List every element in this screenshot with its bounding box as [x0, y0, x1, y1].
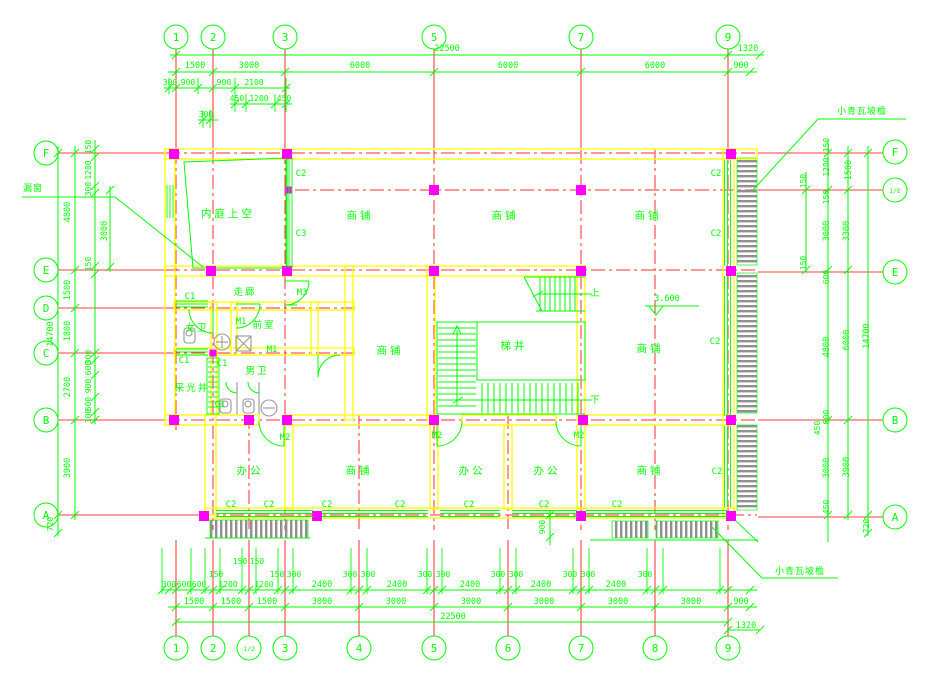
- dim-text: 150: [822, 190, 831, 205]
- dim-text: 2700: [63, 377, 73, 397]
- dim-text: 1500: [257, 597, 277, 607]
- tag-c2: C2: [296, 169, 307, 179]
- dim-text: 600: [822, 410, 831, 425]
- tag-c2: C2: [322, 500, 333, 510]
- dim-text: 150: [822, 138, 831, 153]
- dim-text: 6000: [350, 61, 370, 71]
- tag-m2: M2: [432, 431, 443, 441]
- grid-bubble-label: A: [892, 511, 899, 524]
- room-label-corridor: 走廊: [233, 286, 256, 298]
- dim-text: 300: [509, 570, 524, 579]
- grid-bubble-label: 2: [210, 31, 217, 44]
- cad-floor-plan: 1 2 3 5 7 9 1 2 1/2 3 4 5 6 7 8 9 F E D …: [0, 0, 933, 683]
- dim-text: 2400: [460, 580, 480, 590]
- tag-c2: C2: [711, 169, 722, 179]
- dim-text: 450: [813, 421, 822, 436]
- dim-text: 4800: [822, 337, 832, 357]
- column: [210, 350, 217, 357]
- dim-text: 22500: [440, 612, 466, 622]
- grid-bubble-label: 3: [282, 642, 289, 655]
- dim-text: 600: [192, 580, 207, 589]
- column: [726, 511, 736, 521]
- grid-bubble-label: B: [43, 414, 50, 427]
- column: [578, 415, 588, 425]
- column: [576, 511, 586, 521]
- room-label-anteroom: 前室: [252, 319, 275, 331]
- dim-text: 1320: [736, 621, 756, 631]
- dim-text: 900: [538, 520, 547, 535]
- room-label-shop: 商铺: [492, 209, 519, 222]
- room-label-office: 办公: [459, 464, 486, 477]
- dim-text: 2400: [312, 580, 332, 590]
- room-label-stair-well: 梯井: [501, 339, 528, 352]
- column: [312, 511, 322, 521]
- grid-bubble-label: 5: [431, 642, 438, 655]
- grid-bubble-label: D: [43, 302, 50, 315]
- eave-label-bottom: 小青瓦坡檐: [775, 565, 825, 577]
- room-label-shop: 商铺: [377, 344, 404, 357]
- grid-bubble-label: 9: [725, 31, 732, 44]
- dim-text: 450: [822, 500, 831, 515]
- dim-text: 6000: [498, 61, 518, 71]
- room-label-office: 办公: [237, 464, 264, 477]
- dim-text: 150: [270, 570, 285, 579]
- tag-c2: C2: [710, 337, 721, 347]
- grid-bubble-label: 6: [505, 642, 512, 655]
- grid-bubble-label: 5: [431, 31, 438, 44]
- dim-text: 1500: [63, 280, 73, 300]
- dim-text: 1320: [738, 44, 758, 54]
- dim-text: 600: [84, 361, 93, 376]
- tag-c1: C1: [179, 356, 190, 366]
- column: [206, 266, 216, 276]
- dim-text: 600: [177, 580, 192, 589]
- grid-bubble-label: 7: [578, 31, 585, 44]
- dim-text: 1500: [844, 160, 854, 180]
- dim-text: 14700: [46, 321, 56, 347]
- room-label-light-well: 采光井: [175, 382, 210, 394]
- eave-corner: [733, 518, 758, 542]
- dim-text: 300: [581, 570, 596, 579]
- dim-text: 3000: [386, 597, 406, 607]
- column: [726, 415, 736, 425]
- grid-bubble-label: E: [892, 266, 899, 279]
- eave-band: [737, 273, 757, 413]
- room-label-womens-wc: 女卫: [185, 322, 208, 334]
- dim-text: 2400: [531, 580, 551, 590]
- tag-m1: M1: [236, 317, 247, 327]
- dim-text: 900: [733, 61, 748, 71]
- room-label-mens-wc: 男卫: [245, 366, 268, 377]
- dim-text: 1800: [63, 321, 73, 341]
- column: [726, 266, 736, 276]
- dim-text: 900: [181, 78, 196, 87]
- elevation-triangle: [649, 306, 663, 315]
- tag-m3: M3: [297, 288, 308, 298]
- dim-text: 300: [163, 78, 178, 87]
- elevation-value: 3.600: [654, 294, 680, 304]
- eave-band: [737, 425, 757, 510]
- grid-bubble-label: F: [892, 146, 899, 159]
- dim-text: 6000: [842, 330, 852, 350]
- grid-bubble-label: 7: [578, 642, 585, 655]
- tag-m2: M2: [574, 431, 585, 441]
- dim-text: 3000: [608, 597, 628, 607]
- tag-c2: C2: [712, 467, 723, 477]
- dim-text: 3000: [100, 221, 110, 241]
- tag-c2: C2: [264, 500, 275, 510]
- grid-bubble-label: F: [43, 147, 50, 160]
- dim-text: 300: [287, 570, 302, 579]
- column: [169, 415, 179, 425]
- dim-text: 1200: [249, 94, 268, 103]
- column: [282, 149, 292, 159]
- dim-text: 300: [563, 570, 578, 579]
- column: [429, 266, 439, 276]
- dim-text: 2100: [244, 78, 263, 87]
- column: [429, 185, 439, 195]
- grid-axes: [58, 49, 883, 636]
- dim-text: 300: [84, 409, 93, 424]
- room-label-shop: 商铺: [346, 464, 373, 477]
- dim-text: 6000: [645, 61, 665, 71]
- dim-text: 900: [84, 379, 93, 394]
- tag-c1: C1: [217, 359, 228, 369]
- eave-band: [737, 158, 757, 265]
- dim-text: 3000: [239, 61, 259, 71]
- right-dimensions: 14700 720 1500 3300 6000 3900 150 1200 1…: [799, 138, 872, 534]
- grid-bubble-label: 1: [173, 31, 180, 44]
- dim-text: 3000: [822, 221, 832, 241]
- tag-c1: C1: [215, 400, 226, 410]
- room-label-shop: 商铺: [347, 209, 374, 222]
- dim-text: 900: [217, 78, 232, 87]
- dim-text: 300: [418, 570, 433, 579]
- column: [726, 149, 736, 159]
- dim-text: 22500: [434, 44, 460, 54]
- grid-bubble-label: 3: [282, 31, 289, 44]
- column: [169, 149, 179, 159]
- floor-plan-drawing: 1 2 3 5 7 9 1 2 1/2 3 4 5 6 7 8 9 F E D …: [0, 0, 933, 683]
- column: [576, 266, 586, 276]
- wall: [174, 302, 354, 310]
- dim-text: 150: [84, 140, 93, 155]
- grid-bubble-label: 2: [210, 642, 217, 655]
- dim-text: 150: [209, 570, 224, 579]
- dim-text: 2400: [387, 580, 407, 590]
- grid-bubble-label: 9: [725, 642, 732, 655]
- dim-text: 450: [277, 94, 292, 103]
- stall-door-arc: [248, 382, 259, 393]
- dim-text: 3000: [461, 597, 481, 607]
- dim-text: 450: [230, 94, 245, 103]
- grid-bubble-label: B: [892, 414, 899, 427]
- dim-text: 150: [250, 557, 265, 566]
- grid-bubble-label: 8: [652, 642, 659, 655]
- dim-text: 3000: [312, 597, 332, 607]
- column: [282, 415, 292, 425]
- dim-text: 1200: [84, 160, 93, 179]
- dim-text: 1200: [254, 580, 273, 589]
- grid-bubble-label: 1/E: [889, 187, 901, 195]
- column: [199, 511, 209, 521]
- grid-bubble-label: 4: [356, 642, 363, 655]
- tag-c1: C1: [185, 292, 196, 302]
- lattice-window-label: 漏窗: [23, 182, 43, 194]
- grid-bubble-label: 1/2: [243, 645, 255, 653]
- wall: [205, 415, 216, 515]
- dim-text: 600: [822, 270, 831, 285]
- stair-up-label: 上: [590, 288, 602, 299]
- toilet: [245, 401, 251, 407]
- dim-text: 300: [199, 110, 214, 119]
- dim-text: 150: [233, 557, 248, 566]
- tag-c2: C2: [711, 229, 722, 239]
- grid-bubble-label: C: [43, 347, 50, 360]
- leader-eave-bottom: [712, 527, 762, 578]
- tag-c2: C2: [612, 500, 623, 510]
- tag-m1: M1: [267, 345, 278, 355]
- dim-text: 2400: [606, 580, 626, 590]
- stair-down-label: 下: [590, 395, 602, 406]
- dim-text: 150: [799, 174, 808, 189]
- room-label-courtyard: 内庭上空: [201, 207, 255, 220]
- eave-band: [612, 521, 648, 538]
- column: [244, 415, 254, 425]
- tag-c3: C3: [296, 229, 307, 239]
- dim-text: 300: [361, 570, 376, 579]
- dim-text: 720: [862, 519, 871, 534]
- door-arc-m1: [318, 355, 340, 377]
- dim-text: 1500: [185, 61, 205, 71]
- dim-text: 14700: [862, 323, 872, 349]
- dim-text: 300: [436, 570, 451, 579]
- grid-bubble-label: E: [43, 264, 50, 277]
- tag-c2: C2: [539, 500, 550, 510]
- tag-c2: C2: [464, 500, 475, 510]
- dim-text: 1500: [184, 597, 204, 607]
- dim-text: 3300: [842, 221, 852, 241]
- wall: [165, 149, 757, 159]
- eave-label-top: 小青瓦坡檐: [837, 105, 887, 117]
- eave-band: [656, 521, 718, 538]
- room-label-shop: 商铺: [637, 342, 664, 355]
- room-label-shop: 商铺: [637, 464, 664, 477]
- column: [429, 415, 439, 425]
- tag-m2: M2: [280, 433, 291, 443]
- dim-text: 1200: [822, 157, 831, 176]
- dim-text: 4800: [63, 202, 73, 222]
- dim-text: 3000: [681, 597, 701, 607]
- wall: [345, 266, 353, 420]
- room-label-shop: 商铺: [635, 209, 662, 222]
- dim-text: 150: [84, 257, 93, 272]
- dim-text: 3900: [842, 457, 852, 477]
- leader-eave-top: [753, 119, 818, 190]
- eave-hatch: [205, 158, 758, 542]
- dim-text: 3000: [822, 458, 832, 478]
- dim-text: 300: [162, 580, 177, 589]
- room-label-office: 办公: [534, 464, 561, 477]
- column: [282, 266, 292, 276]
- dim-text: 150: [799, 256, 808, 271]
- dim-text: 300: [491, 570, 506, 579]
- dim-text: 300: [638, 570, 653, 579]
- tag-c2: C2: [226, 500, 237, 510]
- dim-text: 3000: [534, 597, 554, 607]
- dim-text: 1500: [221, 597, 241, 607]
- stair-void: [477, 322, 585, 380]
- dim-text: 300: [84, 182, 93, 197]
- column: [576, 185, 586, 195]
- eave-band: [210, 520, 308, 538]
- tag-c2: C2: [395, 500, 406, 510]
- dim-text: 720: [46, 517, 55, 532]
- dim-text: 900: [733, 597, 748, 607]
- grid-bubble-label: 1: [173, 642, 180, 655]
- dim-text: 300: [343, 570, 358, 579]
- dim-text: 3900: [63, 458, 73, 478]
- stall-door-arc: [226, 382, 237, 393]
- left-dimensions: 14700 720 4800 1500 1800 2700 3900 150 1…: [46, 140, 110, 532]
- dim-text: 1200: [218, 580, 237, 589]
- room-labels: 内庭上空 商铺 商铺 商铺 走廊 前室 女卫 男卫 采光井 商铺 梯井 商铺 办…: [23, 105, 887, 577]
